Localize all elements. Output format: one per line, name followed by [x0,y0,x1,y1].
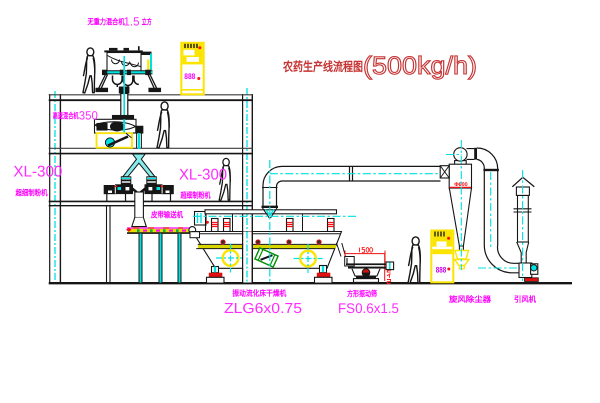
svg-text:方形振动筛: 方形振动筛 [347,290,377,299]
svg-text:立方: 立方 [142,18,152,27]
svg-text:超细制粉机: 超细制粉机 [180,191,211,200]
svg-text:无重力混合机: 无重力混合机 [87,18,125,27]
svg-text:350: 350 [79,109,98,123]
svg-text:FS0.6x1.5: FS0.6x1.5 [338,300,399,316]
svg-text:引风机: 引风机 [514,295,536,304]
svg-text:XL-300: XL-300 [179,167,227,184]
svg-text:超细制粉机: 超细制粉机 [15,189,48,198]
svg-text:旋风除尘器: 旋风除尘器 [448,295,492,304]
svg-text:888: 888 [184,72,195,81]
svg-text:高速混合机: 高速混合机 [53,112,79,121]
svg-text:振动流化床干燥机: 振动流化床干燥机 [232,289,286,298]
svg-text:888: 888 [436,266,447,275]
svg-text:(500kg/h): (500kg/h) [363,52,477,80]
svg-text:ZLG6x0.75: ZLG6x0.75 [224,301,302,317]
svg-text:XL-300: XL-300 [13,164,62,181]
svg-text:皮带输送机: 皮带输送机 [150,211,183,220]
svg-text:1.5: 1.5 [124,15,140,29]
svg-text:农药生产线流程图: 农药生产线流程图 [282,60,363,74]
